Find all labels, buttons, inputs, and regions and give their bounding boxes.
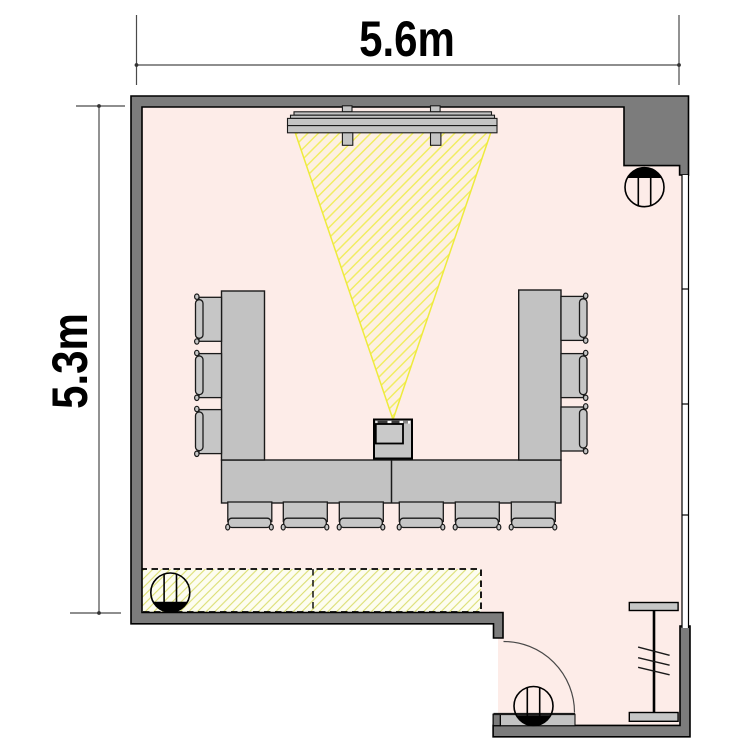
svg-text:5.6m: 5.6m	[359, 11, 455, 67]
svg-text:5.3m: 5.3m	[42, 313, 98, 409]
